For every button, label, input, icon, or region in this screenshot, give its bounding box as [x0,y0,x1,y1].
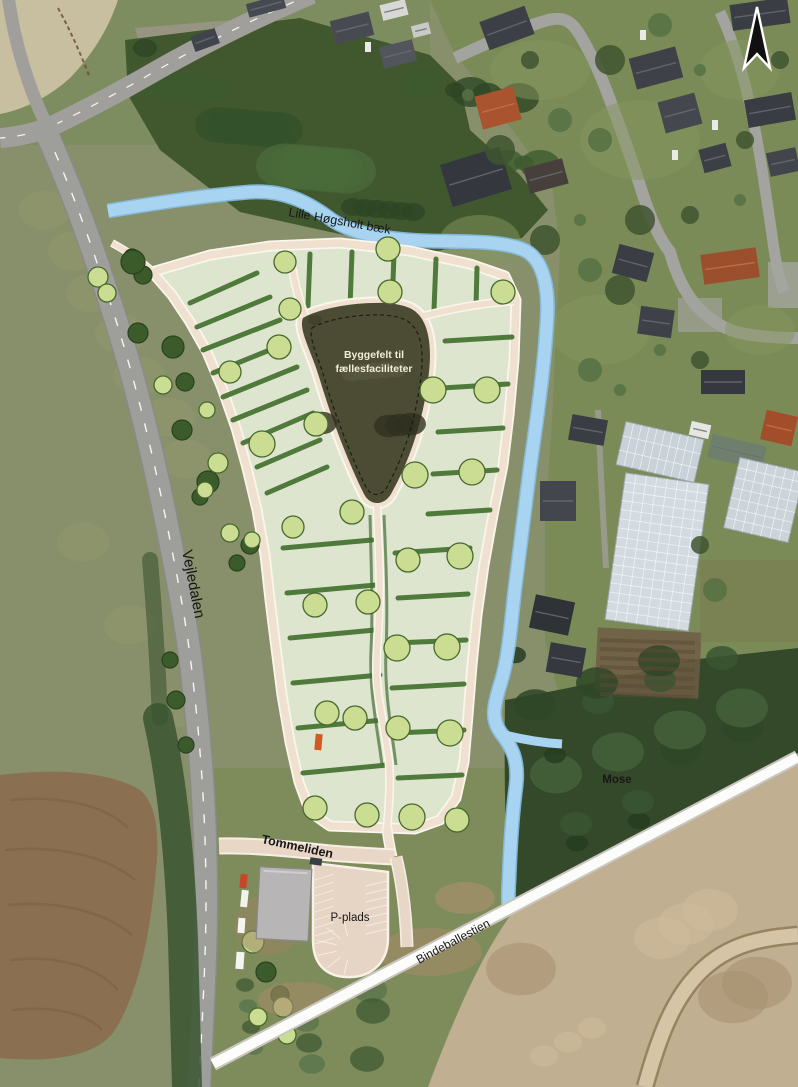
house-roof [701,370,745,394]
label-mose: Mose [602,774,631,786]
house-roof [546,642,587,678]
plan-building [256,867,312,942]
label-parking: P-plads [331,912,370,924]
label-building-field-2: fællesfaciliteter [335,363,412,375]
house-roof [540,481,576,521]
label-building-field-1: Byggefelt til [344,349,404,361]
map-canvas: Lille Høgsholt bæk Byggefelt til fællesf… [0,0,798,1087]
house-roof [637,306,675,338]
aerial-site-plan-map: Lille Høgsholt bæk Byggefelt til fællesf… [0,0,798,1087]
